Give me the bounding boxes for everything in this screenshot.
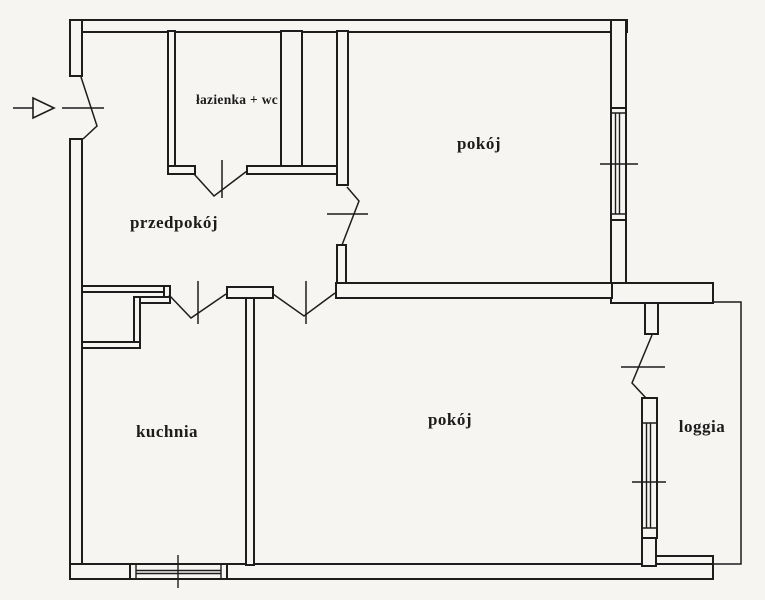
wall-bathroom-left (168, 31, 175, 172)
wall-t-head (227, 287, 273, 298)
room-label-pokoj-bottom: pokój (428, 410, 472, 430)
window-loggia (642, 398, 657, 538)
room-label-pokoj-top: pokój (457, 134, 501, 154)
wall-loggia-top (611, 283, 713, 303)
wall-kitchen-step-horizontal (82, 342, 140, 348)
floor-plan-drawing (0, 0, 765, 600)
wall-hall-south-a (82, 286, 170, 292)
room-label-przedpokoj: przedpokój (130, 213, 218, 233)
wall-bathroom-bottom-right (247, 166, 342, 174)
wall-right-upper (611, 20, 626, 108)
wall-kitchen-room-divider (246, 298, 254, 565)
pokoj-bottom-door-swing (273, 293, 335, 316)
wall-middle (336, 283, 612, 298)
floor-plan: przedpokój łazienka + wc pokój kuchnia p… (0, 0, 765, 600)
entry-arrow-icon (13, 98, 54, 118)
pokoj-top-door-swing (342, 187, 359, 245)
wall-pokoj-top-left (337, 31, 348, 185)
wall-left-lower (70, 139, 82, 579)
wall-bathroom-bottom-left (168, 166, 195, 174)
wall-balcony-door-stub (645, 303, 658, 334)
wall-right-mid (611, 220, 626, 284)
room-label-lazienka-wc: łazienka + wc (196, 92, 278, 108)
wall-kitchen-step-vertical (134, 297, 140, 348)
wall-bathroom-right (281, 31, 302, 172)
room-label-loggia: loggia (679, 417, 725, 437)
wall-below-loggia-window (642, 538, 656, 566)
room-label-kuchnia: kuchnia (136, 422, 198, 442)
wall-left-upper (70, 20, 82, 76)
bathroom-door-swing (194, 171, 247, 196)
